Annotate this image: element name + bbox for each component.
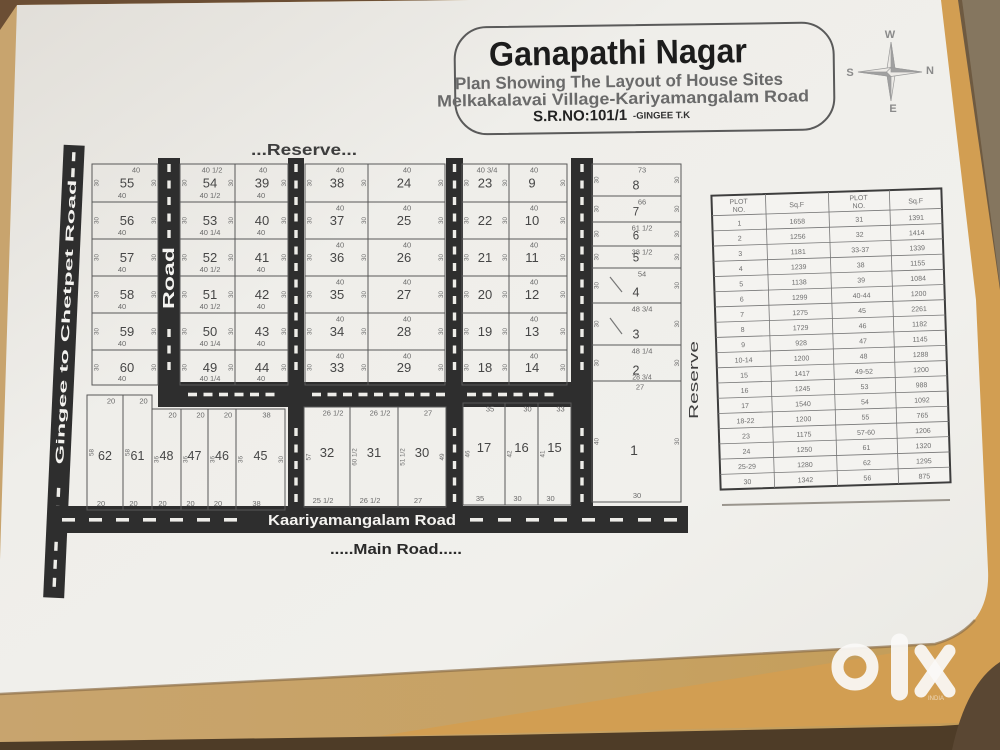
svg-text:45: 45 [254, 449, 268, 463]
svg-text:40: 40 [336, 315, 344, 324]
svg-text:28: 28 [397, 324, 411, 339]
svg-text:48: 48 [160, 449, 174, 463]
svg-text:55: 55 [120, 176, 134, 191]
svg-text:30: 30 [281, 328, 288, 336]
svg-text:30: 30 [674, 438, 681, 446]
svg-text:47: 47 [859, 338, 867, 345]
svg-text:7: 7 [740, 312, 744, 319]
svg-text:23: 23 [478, 176, 492, 191]
svg-text:30: 30 [361, 217, 368, 225]
svg-text:1342: 1342 [798, 477, 814, 484]
svg-text:38: 38 [857, 262, 865, 269]
svg-text:PLOT: PLOT [849, 195, 868, 203]
svg-text:26 1/2: 26 1/2 [360, 496, 381, 505]
svg-text:30: 30 [228, 364, 235, 372]
svg-text:...Reserve...: ...Reserve... [251, 142, 357, 159]
svg-text:40: 40 [336, 204, 344, 213]
svg-text:33: 33 [556, 405, 564, 414]
svg-text:27: 27 [424, 409, 432, 418]
svg-text:33-37: 33-37 [851, 247, 869, 255]
svg-text:30: 30 [307, 217, 314, 225]
svg-text:9: 9 [741, 342, 745, 349]
svg-text:19: 19 [478, 324, 492, 339]
svg-text:.....Main Road.....: .....Main Road..... [330, 541, 462, 558]
svg-text:30: 30 [594, 176, 601, 184]
svg-text:40 1/2: 40 1/2 [200, 265, 221, 274]
svg-text:30: 30 [513, 494, 521, 503]
svg-text:W: W [885, 29, 896, 41]
svg-text:1280: 1280 [797, 462, 813, 469]
svg-text:40: 40 [255, 213, 269, 228]
svg-text:1295: 1295 [916, 458, 932, 465]
svg-text:30: 30 [438, 179, 445, 187]
svg-text:12: 12 [525, 287, 539, 302]
svg-text:7: 7 [633, 207, 639, 219]
svg-text:S.R.NO:101/1: S.R.NO:101/1 [533, 107, 627, 125]
svg-text:1200: 1200 [796, 416, 812, 423]
svg-text:26: 26 [397, 250, 411, 265]
svg-text:28 3/4: 28 3/4 [632, 375, 652, 382]
svg-text:30: 30 [94, 217, 101, 225]
svg-text:53: 53 [861, 384, 869, 391]
svg-text:30: 30 [502, 364, 509, 372]
svg-text:60: 60 [120, 360, 134, 375]
svg-text:30: 30 [438, 217, 445, 225]
svg-text:30: 30 [307, 328, 314, 336]
svg-text:49-52: 49-52 [855, 369, 873, 377]
svg-text:1: 1 [630, 442, 638, 458]
svg-text:35: 35 [476, 494, 484, 503]
svg-text:1206: 1206 [915, 428, 931, 435]
svg-text:40: 40 [118, 374, 126, 383]
svg-text:40: 40 [257, 265, 265, 274]
svg-text:20: 20 [196, 411, 204, 420]
svg-text:26 1/2: 26 1/2 [370, 409, 391, 418]
svg-text:30: 30 [228, 217, 235, 225]
svg-text:1658: 1658 [789, 218, 805, 225]
svg-text:30: 30 [502, 217, 509, 225]
svg-text:29: 29 [397, 360, 411, 375]
svg-text:30: 30 [151, 179, 158, 187]
svg-text:62: 62 [98, 449, 112, 463]
svg-text:30: 30 [278, 456, 285, 464]
svg-text:30: 30 [594, 205, 601, 213]
svg-text:20: 20 [168, 411, 176, 420]
svg-text:30: 30 [560, 254, 567, 262]
svg-text:41: 41 [255, 250, 269, 265]
svg-text:54: 54 [861, 399, 869, 406]
svg-text:40: 40 [530, 241, 538, 250]
svg-text:1138: 1138 [792, 279, 807, 286]
svg-text:30: 30 [281, 364, 288, 372]
svg-text:35: 35 [486, 405, 494, 414]
svg-text:39: 39 [857, 277, 865, 284]
svg-text:40: 40 [118, 302, 126, 311]
svg-text:30: 30 [94, 328, 101, 336]
svg-text:1320: 1320 [916, 443, 932, 450]
svg-text:30: 30 [464, 328, 471, 336]
svg-text:30: 30 [594, 282, 601, 290]
svg-text:1256: 1256 [790, 234, 806, 241]
svg-text:1084: 1084 [910, 275, 926, 282]
svg-text:32: 32 [320, 445, 334, 460]
svg-text:40 1/2: 40 1/2 [200, 191, 221, 200]
svg-text:23: 23 [742, 433, 750, 440]
svg-text:25: 25 [397, 213, 411, 228]
svg-text:30: 30 [182, 254, 189, 262]
svg-text:14: 14 [525, 360, 539, 375]
svg-text:1200: 1200 [794, 355, 810, 362]
svg-text:1288: 1288 [913, 352, 929, 359]
svg-text:38 1/2: 38 1/2 [632, 248, 653, 257]
svg-text:40: 40 [530, 278, 538, 287]
svg-text:875: 875 [918, 473, 930, 480]
svg-text:5: 5 [739, 281, 743, 288]
svg-text:30: 30 [594, 253, 601, 261]
svg-text:NO.: NO. [733, 207, 746, 214]
svg-text:30: 30 [182, 217, 189, 225]
svg-text:48: 48 [860, 354, 868, 361]
svg-text:56: 56 [863, 475, 871, 482]
svg-text:40: 40 [530, 204, 538, 213]
svg-text:30: 30 [361, 291, 368, 299]
svg-text:2: 2 [738, 236, 742, 243]
svg-text:30: 30 [151, 217, 158, 225]
svg-text:30: 30 [151, 364, 158, 372]
svg-text:30: 30 [502, 254, 509, 262]
svg-text:24: 24 [743, 449, 751, 456]
svg-text:10-14: 10-14 [735, 357, 753, 365]
svg-text:30: 30 [674, 176, 681, 184]
svg-text:30: 30 [438, 364, 445, 372]
svg-text:3: 3 [738, 251, 742, 258]
svg-text:PLOT: PLOT [729, 199, 748, 207]
svg-text:30: 30 [560, 328, 567, 336]
svg-text:1181: 1181 [791, 249, 806, 256]
svg-text:1275: 1275 [792, 310, 808, 317]
svg-text:8: 8 [741, 327, 745, 334]
svg-text:30: 30 [94, 254, 101, 262]
svg-text:51 1/2: 51 1/2 [400, 448, 407, 466]
svg-text:15: 15 [547, 440, 561, 455]
svg-text:16: 16 [514, 440, 528, 455]
svg-text:40: 40 [336, 278, 344, 287]
svg-text:33: 33 [330, 360, 344, 375]
svg-text:17: 17 [741, 403, 749, 410]
svg-text:1182: 1182 [912, 321, 927, 328]
svg-text:S: S [846, 67, 853, 79]
svg-text:1414: 1414 [909, 230, 925, 237]
svg-text:30: 30 [633, 491, 641, 500]
svg-text:30: 30 [674, 230, 681, 238]
svg-text:30: 30 [743, 479, 751, 486]
svg-text:40: 40 [132, 166, 140, 175]
svg-text:57: 57 [306, 453, 313, 461]
svg-text:9: 9 [528, 176, 535, 191]
svg-text:20: 20 [214, 499, 222, 508]
svg-text:30: 30 [281, 254, 288, 262]
svg-text:30: 30 [281, 291, 288, 299]
svg-text:30: 30 [151, 291, 158, 299]
svg-text:36: 36 [210, 456, 217, 464]
svg-text:30: 30 [464, 291, 471, 299]
svg-text:30: 30 [307, 254, 314, 262]
svg-text:6: 6 [740, 297, 744, 304]
svg-text:40: 40 [257, 302, 265, 311]
svg-text:27: 27 [397, 287, 411, 302]
svg-text:11: 11 [525, 250, 539, 265]
svg-text:1200: 1200 [913, 367, 929, 374]
svg-text:40: 40 [118, 228, 126, 237]
svg-text:58: 58 [89, 449, 96, 457]
svg-text:30: 30 [151, 254, 158, 262]
svg-text:30: 30 [502, 328, 509, 336]
svg-text:1239: 1239 [791, 264, 807, 271]
svg-text:30: 30 [502, 291, 509, 299]
svg-text:30: 30 [307, 291, 314, 299]
svg-text:62: 62 [863, 460, 871, 467]
svg-text:55: 55 [861, 414, 869, 421]
svg-text:765: 765 [917, 412, 929, 419]
svg-text:40: 40 [403, 204, 411, 213]
svg-text:30: 30 [594, 320, 601, 328]
svg-text:30: 30 [674, 205, 681, 213]
svg-text:30: 30 [674, 359, 681, 367]
svg-text:30: 30 [94, 291, 101, 299]
svg-text:58: 58 [125, 449, 132, 457]
svg-text:36: 36 [154, 456, 161, 464]
svg-text:40: 40 [530, 315, 538, 324]
svg-text:40: 40 [257, 339, 265, 348]
svg-text:42: 42 [255, 287, 269, 302]
svg-text:46: 46 [215, 449, 229, 463]
svg-text:35: 35 [330, 287, 344, 302]
svg-text:1299: 1299 [792, 295, 808, 302]
svg-text:36: 36 [330, 250, 344, 265]
svg-text:E: E [889, 103, 896, 115]
svg-text:30: 30 [182, 291, 189, 299]
svg-text:1200: 1200 [911, 291, 927, 298]
svg-text:73: 73 [638, 166, 646, 175]
svg-text:1: 1 [737, 220, 741, 227]
svg-text:10: 10 [525, 213, 539, 228]
svg-text:Reserve: Reserve [687, 341, 701, 419]
svg-text:40-44: 40-44 [853, 293, 871, 301]
svg-text:40: 40 [403, 166, 411, 175]
svg-text:3: 3 [633, 328, 640, 342]
svg-text:40: 40 [336, 166, 344, 175]
svg-text:40: 40 [118, 191, 126, 200]
svg-text:52: 52 [203, 250, 217, 265]
svg-text:30: 30 [361, 179, 368, 187]
svg-text:38: 38 [330, 176, 344, 191]
svg-text:30: 30 [228, 291, 235, 299]
svg-text:-GINGEE T.K: -GINGEE T.K [633, 110, 690, 122]
svg-text:30: 30 [281, 217, 288, 225]
svg-text:40: 40 [403, 278, 411, 287]
svg-text:30: 30 [502, 179, 509, 187]
svg-text:60 1/2: 60 1/2 [352, 448, 359, 466]
svg-text:2261: 2261 [911, 306, 927, 313]
svg-text:40: 40 [257, 228, 265, 237]
svg-text:44: 44 [255, 360, 269, 375]
svg-text:40: 40 [403, 352, 411, 361]
svg-text:Road: Road [161, 247, 178, 309]
svg-text:1417: 1417 [794, 371, 810, 378]
svg-text:30: 30 [182, 364, 189, 372]
svg-text:57-60: 57-60 [857, 429, 875, 437]
svg-text:30: 30 [464, 217, 471, 225]
svg-text:30: 30 [307, 179, 314, 187]
svg-text:1339: 1339 [909, 245, 925, 252]
svg-text:988: 988 [916, 382, 928, 389]
svg-text:58: 58 [120, 287, 134, 302]
svg-text:20: 20 [478, 287, 492, 302]
svg-text:54: 54 [203, 176, 217, 191]
svg-text:22: 22 [478, 213, 492, 228]
svg-text:30: 30 [560, 179, 567, 187]
svg-text:30: 30 [438, 328, 445, 336]
svg-text:30: 30 [674, 320, 681, 328]
svg-text:30: 30 [182, 179, 189, 187]
svg-text:36: 36 [238, 456, 245, 464]
svg-text:30: 30 [594, 230, 601, 238]
svg-text:20: 20 [224, 411, 232, 420]
svg-text:20: 20 [97, 499, 105, 508]
svg-text:30: 30 [560, 217, 567, 225]
svg-text:42: 42 [507, 450, 514, 458]
svg-text:30: 30 [546, 494, 554, 503]
svg-text:Kaariyamangalam Road: Kaariyamangalam Road [268, 513, 456, 529]
svg-text:17: 17 [477, 440, 491, 455]
svg-text:38: 38 [252, 499, 260, 508]
svg-text:30: 30 [674, 253, 681, 261]
svg-text:30: 30 [307, 364, 314, 372]
svg-text:40 1/2: 40 1/2 [200, 302, 221, 311]
svg-text:20: 20 [107, 397, 115, 406]
svg-text:34: 34 [330, 324, 344, 339]
svg-text:49: 49 [203, 360, 217, 375]
svg-text:40: 40 [257, 191, 265, 200]
svg-text:1250: 1250 [797, 447, 813, 454]
svg-text:40: 40 [257, 374, 265, 383]
svg-text:30: 30 [464, 364, 471, 372]
svg-text:40: 40 [336, 352, 344, 361]
svg-text:27: 27 [636, 383, 644, 392]
svg-text:4: 4 [739, 266, 743, 273]
svg-text:59: 59 [120, 324, 134, 339]
svg-text:30: 30 [594, 359, 601, 367]
svg-text:1175: 1175 [796, 431, 811, 438]
svg-text:46: 46 [465, 450, 472, 458]
svg-text:1145: 1145 [912, 336, 927, 343]
svg-text:25 1/2: 25 1/2 [313, 496, 334, 505]
svg-text:36: 36 [183, 456, 190, 464]
svg-text:1245: 1245 [795, 386, 811, 393]
svg-text:15: 15 [740, 373, 748, 380]
svg-text:61: 61 [131, 449, 145, 463]
svg-text:30: 30 [464, 254, 471, 262]
svg-text:30: 30 [464, 179, 471, 187]
svg-text:56: 56 [120, 213, 134, 228]
svg-text:30: 30 [415, 445, 429, 460]
svg-text:53: 53 [203, 213, 217, 228]
svg-text:30: 30 [94, 364, 101, 372]
svg-text:Ganapathi Nagar: Ganapathi Nagar [489, 32, 748, 74]
svg-text:41: 41 [540, 450, 547, 458]
svg-text:50: 50 [203, 324, 217, 339]
svg-text:46: 46 [859, 323, 867, 330]
svg-text:30: 30 [228, 254, 235, 262]
svg-text:26 1/2: 26 1/2 [323, 409, 344, 418]
svg-text:49: 49 [439, 453, 446, 461]
svg-text:30: 30 [438, 254, 445, 262]
svg-text:40 1/4: 40 1/4 [200, 339, 221, 348]
svg-text:25-29: 25-29 [738, 464, 756, 472]
svg-text:1729: 1729 [793, 325, 809, 332]
svg-text:40: 40 [118, 339, 126, 348]
svg-text:40 1/4: 40 1/4 [200, 228, 221, 237]
svg-text:27: 27 [414, 496, 422, 505]
svg-text:39: 39 [255, 176, 269, 191]
svg-text:40: 40 [403, 241, 411, 250]
svg-text:45: 45 [858, 308, 866, 315]
svg-text:24: 24 [397, 176, 411, 191]
svg-text:Sq.F: Sq.F [908, 198, 923, 205]
svg-text:1391: 1391 [908, 215, 924, 222]
svg-text:66: 66 [638, 198, 646, 207]
svg-text:30: 30 [674, 282, 681, 290]
svg-text:40: 40 [118, 265, 126, 274]
svg-text:20: 20 [186, 499, 194, 508]
svg-text:Sq.F: Sq.F [789, 202, 804, 209]
svg-text:18-22: 18-22 [736, 418, 754, 426]
svg-text:NO.: NO. [853, 203, 866, 210]
svg-text:20: 20 [158, 499, 166, 508]
svg-text:1540: 1540 [795, 401, 811, 408]
svg-text:INDIA: INDIA [928, 696, 944, 702]
svg-text:30: 30 [361, 328, 368, 336]
svg-text:30: 30 [438, 291, 445, 299]
svg-text:30: 30 [560, 291, 567, 299]
svg-text:30: 30 [281, 179, 288, 187]
svg-text:57: 57 [120, 250, 134, 265]
svg-text:38: 38 [262, 411, 270, 420]
svg-text:30: 30 [94, 179, 101, 187]
svg-text:928: 928 [795, 340, 807, 347]
svg-text:40 1/2: 40 1/2 [202, 166, 223, 175]
svg-text:61 1/2: 61 1/2 [632, 224, 653, 233]
svg-text:16: 16 [741, 388, 749, 395]
svg-text:40: 40 [530, 352, 538, 361]
svg-text:30: 30 [361, 364, 368, 372]
svg-text:30: 30 [182, 328, 189, 336]
svg-text:30: 30 [560, 364, 567, 372]
svg-text:20: 20 [139, 397, 147, 406]
svg-text:30: 30 [228, 179, 235, 187]
svg-text:54: 54 [638, 270, 646, 279]
svg-text:1092: 1092 [914, 397, 930, 404]
svg-text:30: 30 [228, 328, 235, 336]
svg-text:40: 40 [594, 438, 601, 446]
svg-text:40: 40 [259, 166, 267, 175]
svg-text:40 1/4: 40 1/4 [200, 374, 221, 383]
svg-text:40: 40 [336, 241, 344, 250]
svg-text:40: 40 [403, 315, 411, 324]
svg-text:51: 51 [203, 287, 217, 302]
svg-text:40: 40 [530, 166, 538, 175]
svg-text:31: 31 [367, 445, 381, 460]
